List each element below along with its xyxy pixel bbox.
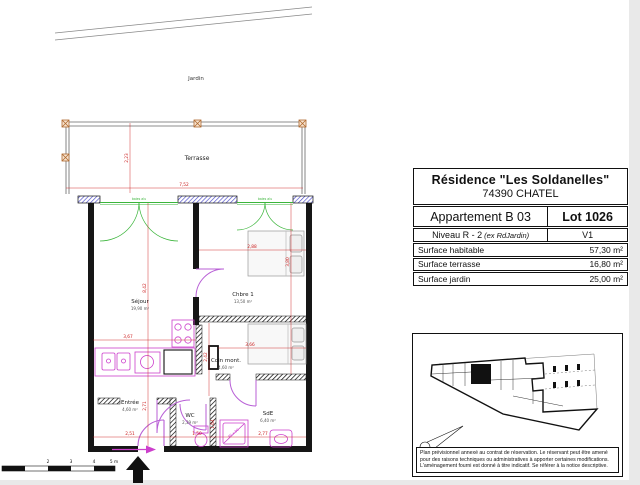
dim-sde-width: 2,77 [258,431,268,437]
jardin-label: Jardin [187,76,204,82]
dim-coin-width: 3,66 [245,342,255,348]
surface-terrasse-label: Surface terrasse [418,259,480,269]
surface-habitable-row: Surface habitable 57,30 m² [413,243,628,257]
dim-wc-height: 1,64 [210,419,216,429]
room-wc-area: 2,39 m² [182,420,198,425]
room-chbre1-area: 13,50 m² [234,299,253,304]
bedroom-bed [248,231,304,276]
room-coin-name: Coin mont. [211,358,241,364]
room-sde-name: SdE [263,411,274,417]
level-cell: Niveau R - 2 (ex RdJardin) [414,229,548,241]
surface-jardin-value: 25,00 m² [589,274,623,284]
level-label: Niveau R - 2 [432,230,482,240]
dim-entree-width: 2,51 [125,431,135,437]
level-row: Niveau R - 2 (ex RdJardin) V1 [413,228,628,242]
dimension-labels: 7,52 2,23 8,42 3,67 2,88 3,80 2,42 3,66 … [123,153,291,437]
site-grid-dashes [545,370,595,389]
highlighted-unit [471,364,491,384]
surface-jardin-row: Surface jardin 25,00 m² [413,272,628,286]
site-plan-box: Plan prévisionnel annexé au contrat de r… [412,333,623,477]
apartment-row: Appartement B 03 Lot 1026 [413,206,628,227]
surface-habitable-label: Surface habitable [418,245,484,255]
room-sejour-name: Séjour [131,298,149,305]
plan-version: V1 [548,229,627,241]
dim-sejour-height: 8,42 [142,283,148,293]
bay-window-label: baies alu [132,197,146,201]
shower: 90 x 90 [220,420,248,447]
surface-habitable-value: 57,30 m² [589,245,623,255]
bay-window-label: baies alu [258,197,272,201]
lot-number: Lot 1026 [548,207,627,226]
terrasse-label: Terrasse [184,155,210,162]
coin-montagne-bed [248,324,306,364]
scale-bar: 2 3 4 5 m [2,459,118,471]
kitchen-fixtures [95,320,195,376]
room-coin-area: 4,60 m² [218,365,234,370]
boundary-lines [55,7,312,40]
dim-chambre-width: 2,88 [247,244,257,250]
entry-direction-arrow [146,446,156,454]
site-columns [553,364,580,388]
scale-label-3: 3 [70,459,73,465]
dim-coin-height: 2,42 [203,352,209,362]
dim-hall-height: 2,71 [142,401,148,411]
surface-terrasse-row: Surface terrasse 16,80 m² [413,258,628,272]
room-sde-area: 6,40 m² [260,418,276,423]
room-chbre1-name: Chbre 1 [232,292,254,298]
dim-sejour-width: 3,67 [123,334,133,340]
dimension-lines [66,123,306,446]
entrance-arrow [126,456,150,483]
room-entree-area: 4,60 m² [122,407,138,412]
room-sejour-area: 19,90 m² [131,306,150,311]
residence-city: 74390 CHATEL [482,188,558,200]
residence-name: Résidence "Les Soldanelles" [432,173,610,187]
info-table: Résidence "Les Soldanelles" 74390 CHATEL… [413,168,628,287]
scale-label-5m: 5 m [110,459,118,465]
disclaimer-text: Plan prévisionnel annexé au contrat de r… [416,447,619,473]
building-outline [431,358,597,430]
dim-terrace-depth: 2,23 [124,153,130,163]
scale-label-4: 4 [93,459,96,465]
level-note: (ex RdJardin) [484,231,529,240]
washbasin [270,430,292,447]
facade-piers [78,196,313,203]
room-wc-name: WC [185,413,194,419]
apartment-number: Appartement B 03 [414,207,548,226]
dim-chambre-height: 3,80 [285,257,291,267]
document-page: Jardin Terrasse [0,0,640,485]
dim-terrace-width: 7,52 [179,182,189,188]
surface-jardin-label: Surface jardin [418,274,470,284]
dim-wc-width: 1,50 [192,431,202,437]
surface-terrasse-value: 16,80 m² [589,259,623,269]
room-entree-name: Entrée [121,399,140,406]
residence-title-box: Résidence "Les Soldanelles" 74390 CHATEL [413,168,628,205]
scale-label-2: 2 [47,459,50,465]
